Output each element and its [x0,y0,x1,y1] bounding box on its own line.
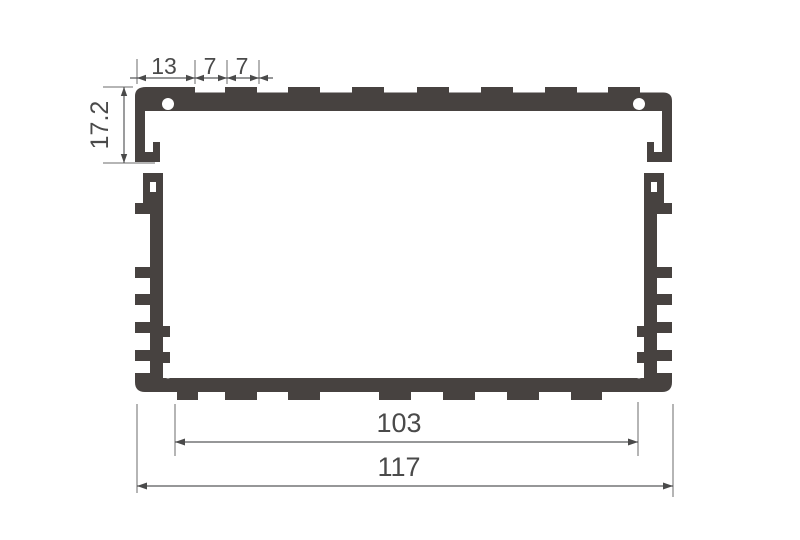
dim-label-groove-a: 7 [204,53,217,79]
dim-label-cover-height: 17.2 [86,101,114,150]
profile-drawing: 13 7 7 17.2 103 117 [0,0,800,540]
dim-label-top-margin: 13 [151,53,177,79]
base-bottom-wall [135,373,672,400]
dimension-inner-width: 103 [175,402,638,456]
screw-port-left [162,98,174,110]
cover-outline [135,87,672,162]
dim-label-inner-width: 103 [376,408,421,438]
corner-relief-right [635,370,644,379]
dim-label-groove-b: 7 [236,53,249,79]
hook-slot-left [150,182,156,192]
corner-relief-left [164,370,173,379]
profile [135,87,672,400]
dim-label-outer-width: 117 [377,452,420,482]
drawing-canvas: 13 7 7 17.2 103 117 [0,0,800,540]
screw-port-right [633,98,645,110]
base-right-wall [637,173,672,380]
base-left-wall [135,173,170,380]
dimension-top: 13 7 7 [130,53,273,84]
hook-slot-right [651,182,657,192]
profile-cutouts [150,98,657,379]
